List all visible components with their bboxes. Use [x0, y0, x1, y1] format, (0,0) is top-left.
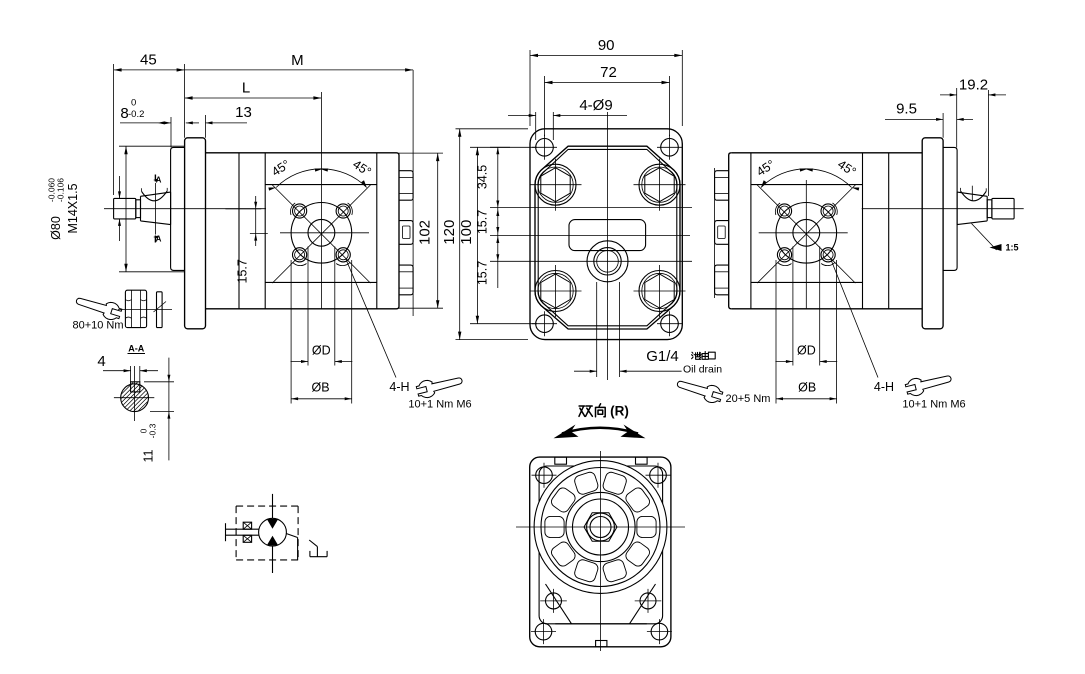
svg-text:-0.106: -0.106 — [56, 178, 66, 202]
svg-text:15.7: 15.7 — [476, 261, 490, 285]
svg-text:45: 45 — [140, 52, 157, 69]
svg-text:L: L — [242, 80, 250, 97]
svg-text:ØD: ØD — [797, 344, 816, 358]
svg-text:120: 120 — [441, 220, 458, 245]
svg-text:G1/4: G1/4 — [646, 348, 679, 365]
svg-text:102: 102 — [417, 220, 434, 245]
svg-text:Ø80: Ø80 — [49, 216, 63, 240]
svg-text:1:5: 1:5 — [1005, 243, 1018, 253]
svg-text:Oil drain: Oil drain — [683, 364, 722, 376]
svg-text:A-A: A-A — [128, 344, 144, 354]
svg-text:-0.2: -0.2 — [128, 109, 144, 120]
svg-text:20+5 Nm: 20+5 Nm — [726, 393, 771, 405]
svg-text:13: 13 — [235, 104, 252, 121]
svg-text:4-Ø9: 4-Ø9 — [579, 97, 612, 114]
svg-text:90: 90 — [598, 37, 615, 54]
svg-text:10+1 Nm M6: 10+1 Nm M6 — [902, 399, 965, 411]
svg-text:15.7: 15.7 — [476, 210, 490, 234]
svg-text:15.7: 15.7 — [236, 259, 250, 283]
svg-text:10+1 Nm M6: 10+1 Nm M6 — [408, 399, 471, 411]
svg-text:9.5: 9.5 — [896, 101, 917, 118]
svg-text:ØB: ØB — [798, 381, 816, 395]
svg-text:ØD: ØD — [312, 344, 331, 358]
svg-text:M14X1.5: M14X1.5 — [66, 183, 80, 233]
svg-text:ØB: ØB — [311, 381, 329, 395]
svg-text:4: 4 — [97, 353, 105, 370]
svg-text:(R): (R) — [610, 404, 629, 419]
svg-text:A: A — [156, 234, 162, 243]
svg-text:34.5: 34.5 — [476, 165, 490, 189]
svg-text:19.2: 19.2 — [959, 77, 988, 94]
svg-text:M: M — [291, 52, 304, 69]
svg-text:4-H: 4-H — [874, 380, 894, 394]
svg-text:100: 100 — [458, 220, 475, 245]
svg-text:80+10 Nm: 80+10 Nm — [72, 320, 123, 332]
svg-text:4-H: 4-H — [389, 380, 409, 394]
svg-text:72: 72 — [600, 64, 617, 81]
svg-text:0: 0 — [131, 98, 136, 109]
svg-text:11: 11 — [142, 449, 156, 462]
svg-text:-0.3: -0.3 — [148, 423, 158, 438]
